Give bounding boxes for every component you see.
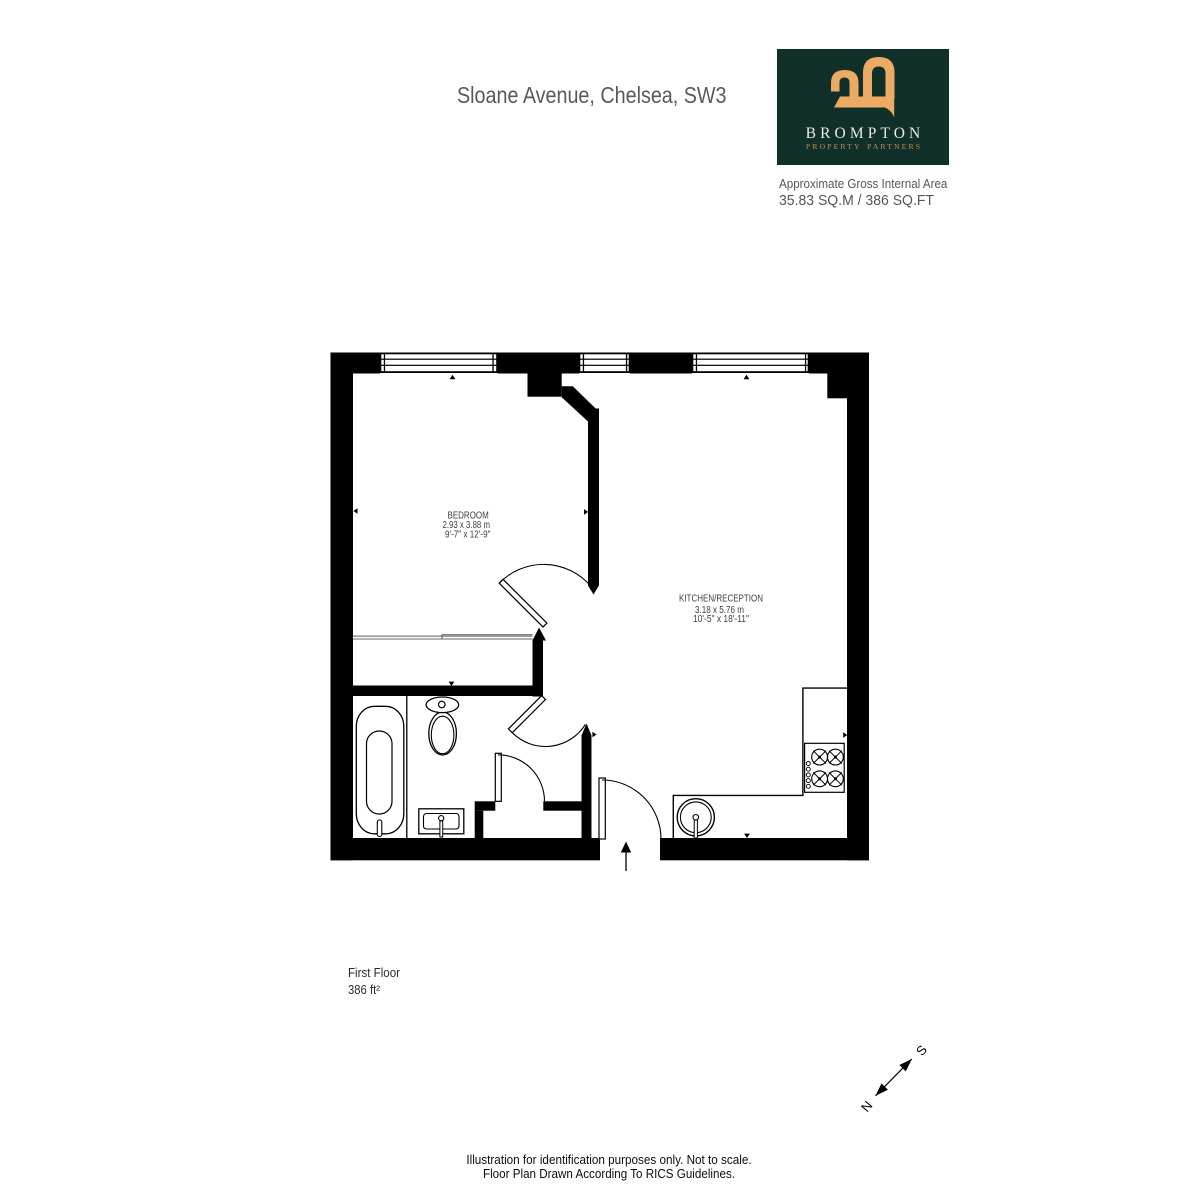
svg-text:9'-7" x 12'-9": 9'-7" x 12'-9"	[445, 529, 491, 540]
svg-text:S: S	[913, 1042, 930, 1059]
svg-text:10'-5" x 18'-11": 10'-5" x 18'-11"	[693, 614, 749, 625]
svg-text:KITCHEN/RECEPTION: KITCHEN/RECEPTION	[679, 594, 763, 605]
svg-text:N: N	[858, 1098, 876, 1115]
